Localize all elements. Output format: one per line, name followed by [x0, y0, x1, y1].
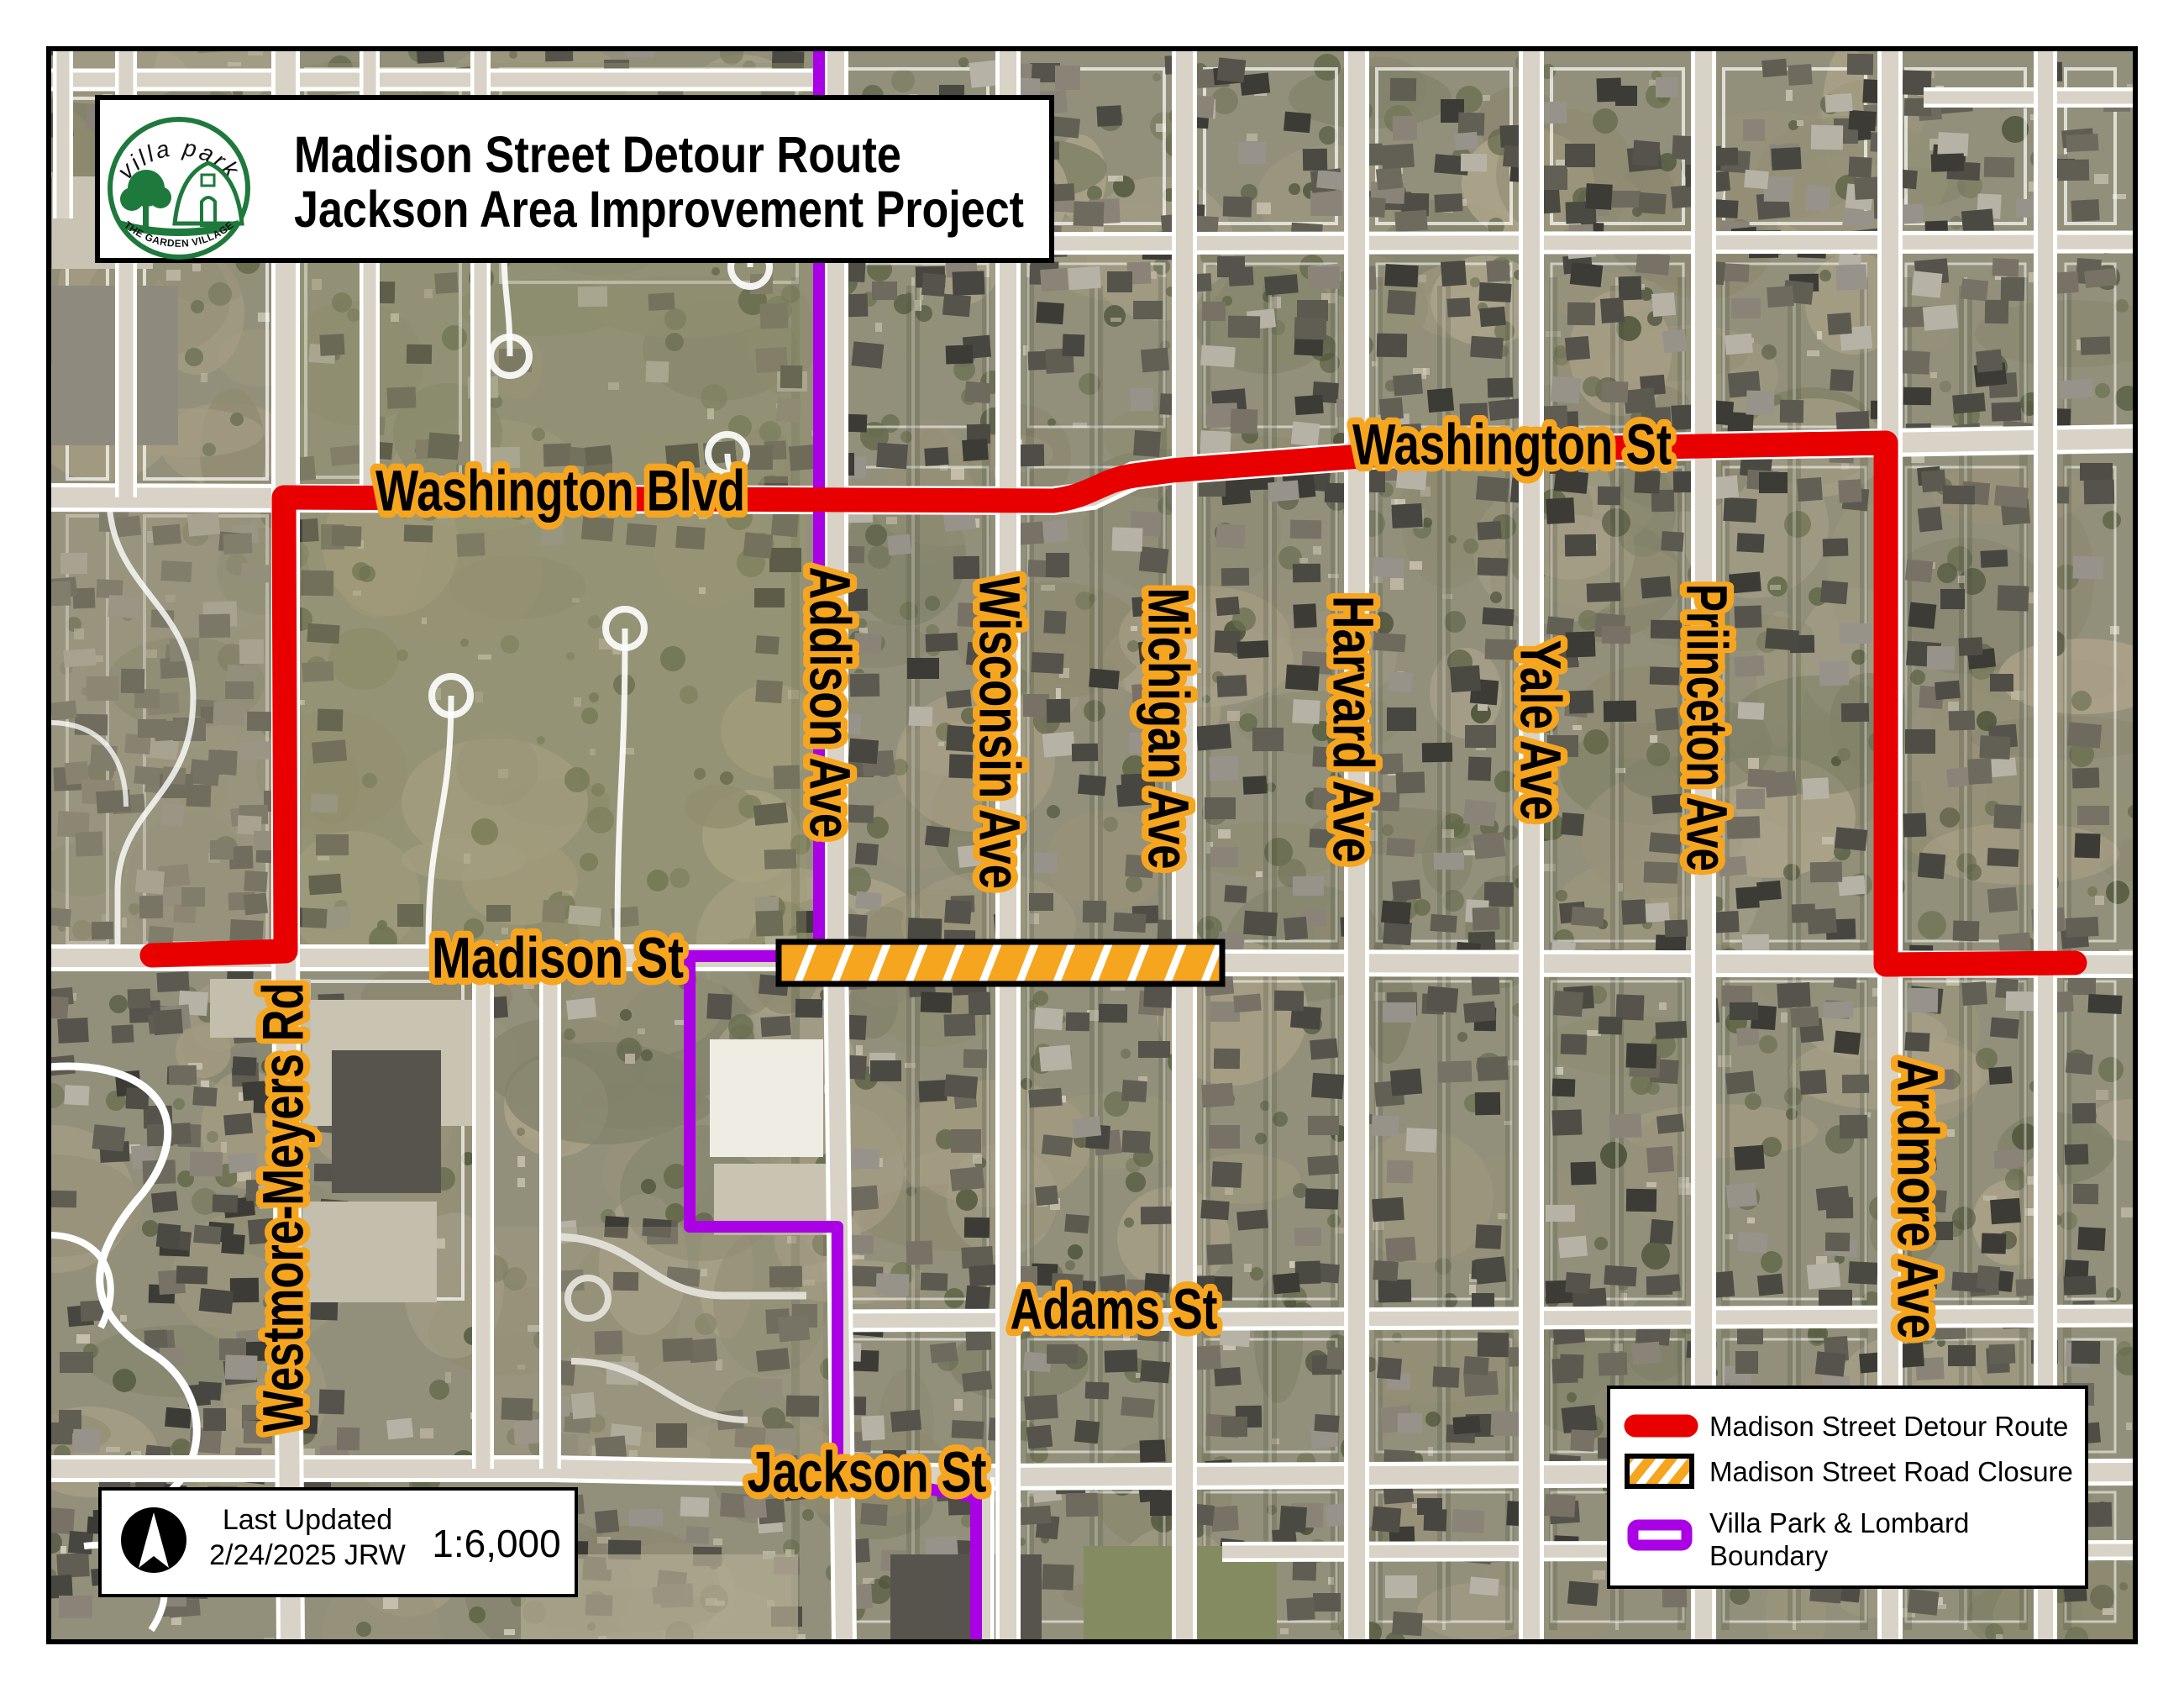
svg-text:Last Updated: Last Updated — [223, 1504, 392, 1536]
svg-text:Washington St: Washington St — [1352, 413, 1672, 477]
svg-text:Michigan Ave: Michigan Ave — [1136, 588, 1200, 870]
svg-text:Jackson St: Jackson St — [748, 1440, 987, 1505]
svg-text:1:6,000: 1:6,000 — [432, 1522, 560, 1565]
svg-text:Harvard Ave: Harvard Ave — [1320, 596, 1385, 863]
svg-text:Ardmore Ave: Ardmore Ave — [1885, 1060, 1950, 1339]
svg-text:Westmore-Meyers Rd: Westmore-Meyers Rd — [251, 983, 316, 1433]
svg-text:Madison St: Madison St — [432, 926, 684, 991]
svg-text:Boundary: Boundary — [1709, 1540, 1829, 1571]
svg-text:Villa Park & Lombard: Villa Park & Lombard — [1709, 1507, 1969, 1538]
svg-text:Wisconsin Ave: Wisconsin Ave — [967, 576, 1032, 889]
svg-text:Adams St: Adams St — [1011, 1277, 1218, 1342]
svg-text:Madison Street Road Closure: Madison Street Road Closure — [1709, 1456, 2073, 1487]
svg-text:Addison Ave: Addison Ave — [797, 567, 862, 839]
svg-text:Washington Blvd: Washington Blvd — [375, 459, 745, 523]
svg-text:Madison Street Detour Route: Madison Street Detour Route — [294, 126, 901, 183]
svg-text:Madison Street Detour Route: Madison Street Detour Route — [1709, 1411, 2068, 1442]
svg-text:Jackson Area Improvement Proje: Jackson Area Improvement Project — [294, 181, 1024, 238]
svg-text:Yale Ave: Yale Ave — [1508, 640, 1572, 821]
svg-text:2/24/2025 JRW: 2/24/2025 JRW — [209, 1539, 406, 1571]
svg-text:Priinceton Ave: Priinceton Ave — [1674, 584, 1739, 871]
